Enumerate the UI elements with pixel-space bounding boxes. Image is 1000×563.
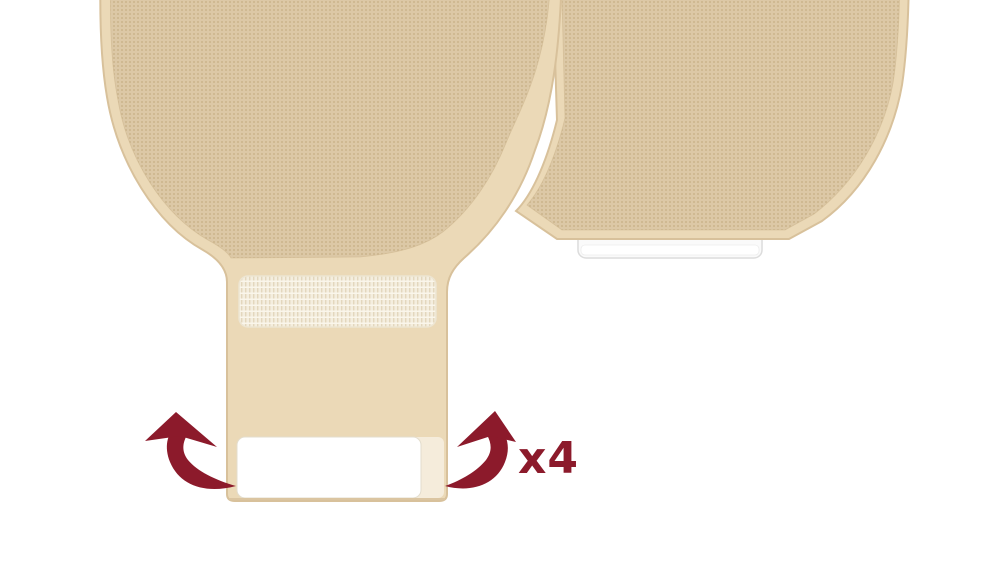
repeat-count-label: x4 bbox=[518, 437, 579, 481]
roll-arrow-left bbox=[145, 412, 236, 489]
outlet-opening bbox=[237, 437, 421, 498]
velcro-strip bbox=[239, 276, 436, 327]
pouch-illustration bbox=[0, 0, 1000, 563]
illustration-canvas: x4 bbox=[0, 0, 1000, 563]
closed-pouch bbox=[516, 0, 909, 258]
roll-arrow-right bbox=[445, 411, 516, 488]
